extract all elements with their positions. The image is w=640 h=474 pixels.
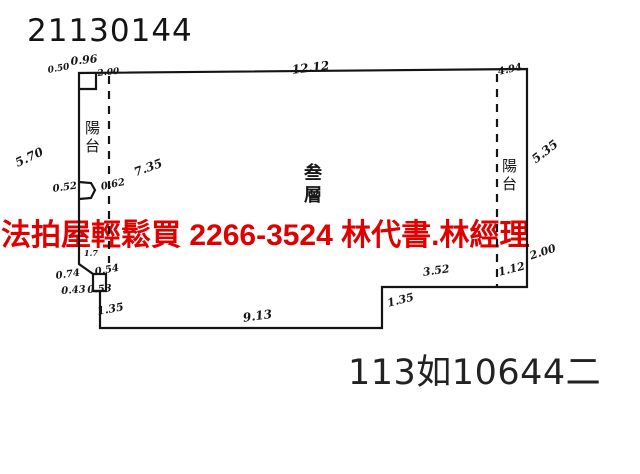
balcony-right-label: 陽台: [499, 158, 520, 194]
dimension-label: 0.53: [87, 283, 112, 296]
dimension-label: 1.7: [84, 248, 98, 258]
wall-bump: [79, 182, 95, 199]
scanned-floor-plan-page: 21130144 法拍屋輕鬆買 2266-3524 林代書.林經理 陽台 陽台 …: [0, 0, 640, 474]
case-number: 113如10644二: [348, 344, 601, 395]
balcony-left-label: 陽台: [82, 120, 103, 156]
dimension-label: 0.43: [61, 284, 86, 297]
room-floor-label: 叁層: [298, 163, 324, 207]
dimension-label: 0.96: [70, 52, 98, 68]
document-number: 21130144: [27, 13, 193, 49]
corner-column: [79, 73, 96, 89]
